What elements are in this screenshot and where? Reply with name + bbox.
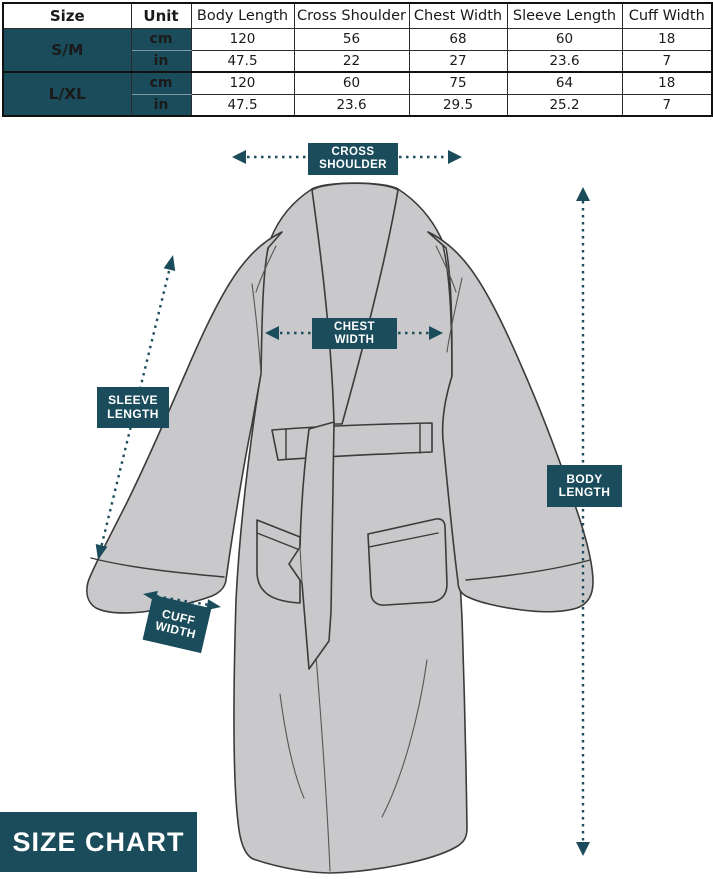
cross-shoulder-label: CROSS SHOULDER xyxy=(308,143,398,175)
label-line: SHOULDER xyxy=(319,159,387,172)
label-line: BODY xyxy=(566,473,602,486)
label-line: LENGTH xyxy=(107,408,159,421)
chest-width-label: CHEST WIDTH xyxy=(312,318,397,349)
value-cell: 75 xyxy=(409,72,507,94)
col-header-size: Size xyxy=(3,3,131,28)
unit-cell: cm xyxy=(131,28,191,50)
arrowhead-top xyxy=(164,255,176,271)
value-cell: 7 xyxy=(622,94,712,116)
size-table: Size Unit Body Length Cross Shoulder Che… xyxy=(2,2,713,117)
value-cell: 120 xyxy=(191,72,294,94)
unit-cell: cm xyxy=(131,72,191,94)
value-cell: 27 xyxy=(409,50,507,72)
value-cell: 25.2 xyxy=(507,94,622,116)
label-line: CROSS xyxy=(332,146,375,159)
right-pocket xyxy=(368,519,447,605)
arrowhead-bottom xyxy=(576,842,590,856)
size-table-container: Size Unit Body Length Cross Shoulder Che… xyxy=(2,2,711,117)
size-cell-lxl: L/XL xyxy=(3,72,131,116)
label-line: WIDTH xyxy=(335,334,375,347)
value-cell: 7 xyxy=(622,50,712,72)
value-cell: 60 xyxy=(294,72,409,94)
col-header-cross-shoulder: Cross Shoulder xyxy=(294,3,409,28)
unit-cell: in xyxy=(131,50,191,72)
col-header-chest-width: Chest Width xyxy=(409,3,507,28)
col-header-sleeve-length: Sleeve Length xyxy=(507,3,622,28)
value-cell: 60 xyxy=(507,28,622,50)
value-cell: 29.5 xyxy=(409,94,507,116)
col-header-unit: Unit xyxy=(131,3,191,28)
table-header-row: Size Unit Body Length Cross Shoulder Che… xyxy=(3,3,712,28)
size-chart-caption: SIZE CHART xyxy=(0,812,197,872)
arrowhead-right xyxy=(448,150,462,164)
sleeve-length-label: SLEEVE LENGTH xyxy=(97,387,169,428)
value-cell: 22 xyxy=(294,50,409,72)
table-row-sm-cm: S/M cm 120 56 68 60 18 xyxy=(3,28,712,50)
value-cell: 120 xyxy=(191,28,294,50)
value-cell: 23.6 xyxy=(507,50,622,72)
value-cell: 68 xyxy=(409,28,507,50)
label-line: LENGTH xyxy=(559,486,611,499)
unit-cell: in xyxy=(131,94,191,116)
value-cell: 47.5 xyxy=(191,50,294,72)
size-cell-sm: S/M xyxy=(3,28,131,72)
value-cell: 18 xyxy=(622,28,712,50)
col-header-cuff-width: Cuff Width xyxy=(622,3,712,28)
caption-text: SIZE CHART xyxy=(13,827,185,858)
col-header-body-length: Body Length xyxy=(191,3,294,28)
label-line: SLEEVE xyxy=(108,394,158,407)
label-line: CHEST xyxy=(334,321,375,334)
value-cell: 47.5 xyxy=(191,94,294,116)
robe-diagram xyxy=(0,0,713,879)
arrowhead-left xyxy=(232,150,246,164)
table-row-lxl-cm: L/XL cm 120 60 75 64 18 xyxy=(3,72,712,94)
arrowhead-top xyxy=(576,187,590,201)
value-cell: 18 xyxy=(622,72,712,94)
body-length-label: BODY LENGTH xyxy=(547,465,622,507)
value-cell: 56 xyxy=(294,28,409,50)
value-cell: 64 xyxy=(507,72,622,94)
value-cell: 23.6 xyxy=(294,94,409,116)
robe-drawing xyxy=(87,183,593,873)
size-chart-infographic: CROSS SHOULDER CHEST WIDTH SLEEVE LENGTH… xyxy=(0,0,713,879)
